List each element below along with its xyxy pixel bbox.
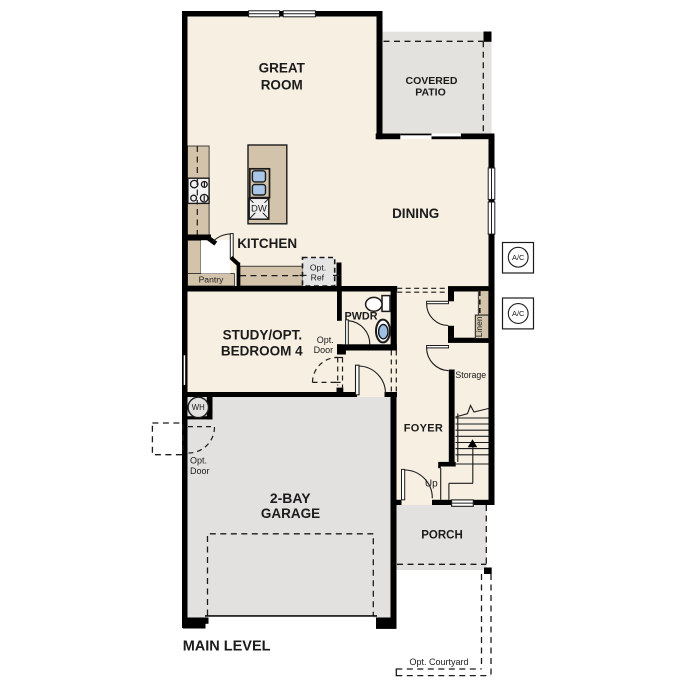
svg-text:PORCH: PORCH: [421, 530, 463, 542]
svg-text:DINING: DINING: [392, 206, 439, 221]
svg-text:Opt.: Opt.: [190, 456, 207, 466]
svg-text:GARAGE: GARAGE: [261, 506, 320, 521]
svg-text:Door: Door: [314, 345, 334, 355]
svg-text:PATIO: PATIO: [415, 87, 446, 99]
svg-text:Linen: Linen: [474, 316, 484, 337]
svg-text:MAIN LEVEL: MAIN LEVEL: [183, 638, 271, 654]
svg-text:Opt.: Opt.: [317, 335, 334, 345]
svg-text:A/C: A/C: [512, 253, 525, 262]
svg-text:WH: WH: [192, 403, 205, 412]
svg-text:Ref: Ref: [311, 273, 325, 283]
svg-text:ROOM: ROOM: [261, 77, 303, 92]
svg-text:Up: Up: [425, 479, 438, 490]
svg-text:A/C: A/C: [512, 309, 525, 318]
svg-text:KITCHEN: KITCHEN: [237, 236, 297, 251]
svg-text:FOYER: FOYER: [404, 422, 443, 434]
svg-text:GREAT: GREAT: [259, 61, 306, 76]
svg-text:PWDR: PWDR: [345, 310, 378, 322]
svg-text:Opt.: Opt.: [310, 262, 326, 272]
svg-text:Opt. Courtyard: Opt. Courtyard: [409, 657, 468, 667]
svg-text:Door: Door: [190, 466, 210, 476]
svg-text:BEDROOM 4: BEDROOM 4: [221, 344, 303, 359]
svg-text:DW: DW: [251, 204, 267, 215]
svg-text:STUDY/OPT.: STUDY/OPT.: [223, 328, 303, 343]
svg-text:Pantry: Pantry: [199, 274, 225, 284]
svg-text:2-BAY: 2-BAY: [270, 490, 311, 506]
svg-text:Storage: Storage: [455, 370, 486, 380]
svg-text:COVERED: COVERED: [406, 75, 458, 87]
